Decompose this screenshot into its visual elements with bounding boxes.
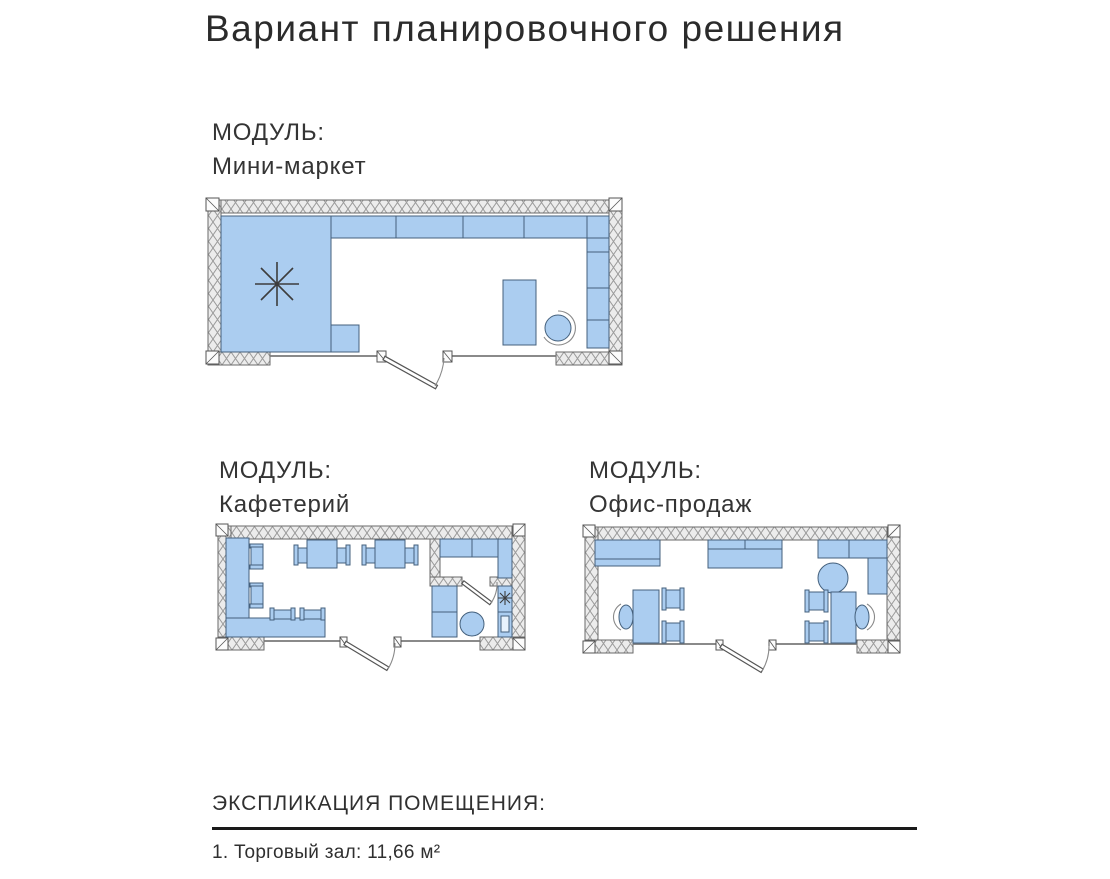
mini-market-floor-plan — [204, 196, 624, 396]
module-name: Офис-продаж — [589, 488, 752, 522]
module-prefix: МОДУЛЬ: — [212, 116, 366, 150]
bar-chair — [300, 608, 325, 620]
office-chair — [855, 604, 875, 630]
sink-unit — [498, 612, 512, 637]
bar-chair — [250, 583, 263, 608]
visitor-chair — [805, 590, 828, 612]
page-title: Вариант планировочного решения — [205, 8, 845, 50]
module-name: Кафетерий — [219, 488, 350, 522]
cold-room — [221, 216, 331, 352]
dining-table — [294, 540, 350, 568]
sales-office-floor-plan — [581, 520, 906, 685]
visitor-chair — [662, 588, 684, 610]
dining-table — [362, 540, 418, 568]
explication-heading: ЭКСПЛИКАЦИЯ ПОМЕЩЕНИЯ: — [212, 792, 546, 816]
explication-item: 1. Торговый зал: 11,66 м² — [212, 842, 440, 864]
bar-chair — [250, 544, 263, 569]
round-table — [460, 612, 484, 636]
entrance-door — [377, 351, 452, 389]
office-chair — [613, 604, 633, 630]
cash-desk — [503, 280, 536, 345]
office-desk-left — [633, 590, 659, 643]
module-label-sales-office: МОДУЛЬ: Офис-продаж — [589, 454, 752, 522]
sofa — [708, 540, 782, 568]
module-prefix: МОДУЛЬ: — [589, 454, 752, 488]
shelving-top — [331, 216, 587, 238]
snowflake-icon — [498, 591, 512, 605]
module-prefix: МОДУЛЬ: — [219, 454, 350, 488]
module-name: Мини-маркет — [212, 150, 366, 184]
shelving-right — [587, 216, 609, 348]
snowflake-icon — [255, 262, 299, 306]
module-label-mini-market: МОДУЛЬ: Мини-маркет — [212, 116, 366, 184]
cashier-chair — [544, 311, 575, 345]
coffee-table — [818, 563, 848, 593]
module-label-cafeteria: МОДУЛЬ: Кафетерий — [219, 454, 350, 522]
cabinet — [595, 540, 660, 566]
bar-chair — [270, 608, 295, 620]
cafeteria-floor-plan — [214, 520, 532, 685]
office-desk-right — [831, 592, 856, 643]
kitchen-counter — [440, 539, 512, 578]
fridge-unit — [498, 586, 512, 612]
visitor-chair — [805, 621, 828, 643]
explication-divider — [212, 827, 917, 830]
kitchen-counter — [432, 586, 457, 637]
entrance-door — [340, 637, 401, 670]
counter-block — [331, 325, 359, 352]
visitor-chair — [662, 621, 684, 643]
entrance-door — [716, 640, 776, 672]
